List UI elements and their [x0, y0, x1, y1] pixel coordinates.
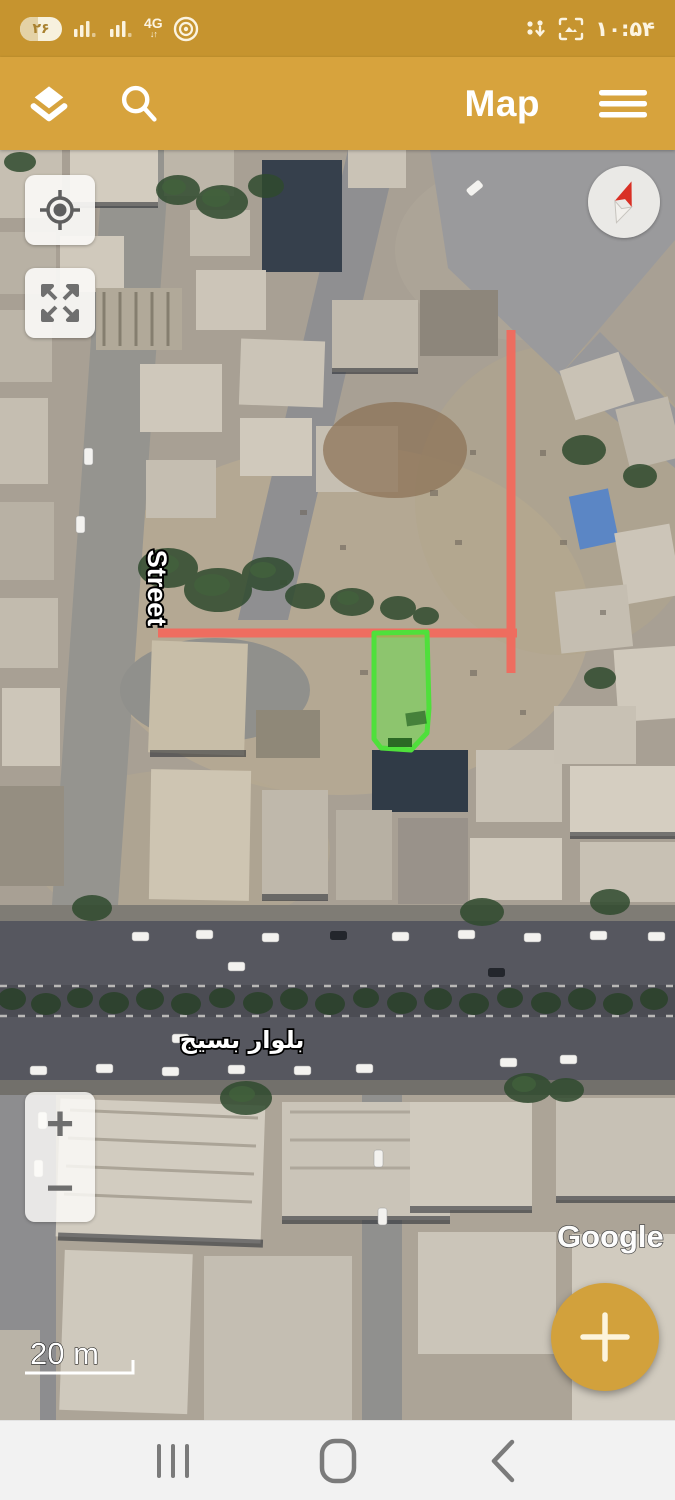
my-location-button[interactable]	[25, 175, 95, 245]
fullscreen-button[interactable]	[25, 268, 95, 338]
battery-pill: ۲۶	[20, 17, 62, 41]
compass-button[interactable]	[588, 166, 660, 238]
highlighted-parcel[interactable]	[374, 632, 429, 750]
data-transfer-icon	[525, 17, 547, 41]
app-bar: Map	[0, 57, 675, 150]
battery-percent: ۲۶	[32, 21, 49, 37]
add-fab-button[interactable]	[551, 1283, 659, 1391]
screenshot-icon	[557, 16, 585, 42]
zoom-out-button[interactable]: −	[25, 1158, 95, 1220]
phone-screen: { "status_bar": { "battery_percent": "۲۶…	[0, 0, 675, 1500]
search-icon[interactable]	[117, 82, 161, 126]
zoom-in-button[interactable]: +	[25, 1094, 95, 1156]
home-icon	[318, 1438, 358, 1484]
dark-building	[372, 750, 468, 812]
layers-icon[interactable]	[27, 83, 71, 125]
clock: ۱۰:۵۴	[595, 17, 655, 41]
status-left-cluster: ۲۶ 4G ↓↑	[20, 16, 199, 42]
android-nav-bar	[0, 1420, 675, 1500]
boulevard-label: بلوار بسیج	[180, 1026, 305, 1054]
signal-bars-sim2-icon	[108, 17, 134, 41]
menu-icon[interactable]	[598, 84, 648, 124]
fullscreen-icon	[38, 281, 82, 325]
signal-bars-sim1-icon	[72, 17, 98, 41]
back-button[interactable]	[458, 1431, 548, 1491]
home-button[interactable]	[293, 1431, 383, 1491]
network-4g-icon: 4G ↓↑	[144, 18, 163, 40]
parcel-overlay[interactable]	[374, 632, 429, 750]
my-location-icon	[38, 188, 82, 232]
satellite-map[interactable]: Street بلوار بسیج Google 20 m	[0, 150, 675, 1420]
compass-icon	[596, 174, 652, 230]
recents-icon	[153, 1441, 193, 1481]
add-icon	[578, 1310, 632, 1364]
recents-button[interactable]	[128, 1431, 218, 1491]
street-label: Street	[142, 550, 172, 627]
hotspot-icon	[173, 16, 199, 42]
status-bar: ۲۶ 4G ↓↑	[0, 0, 675, 57]
status-right-cluster: ۱۰:۵۴	[525, 16, 655, 42]
back-icon	[488, 1438, 518, 1484]
zoom-control: + −	[25, 1092, 95, 1222]
page-title: Map	[465, 83, 541, 125]
map-attribution: Google	[557, 1219, 664, 1254]
scale-label: 20 m	[30, 1336, 99, 1371]
